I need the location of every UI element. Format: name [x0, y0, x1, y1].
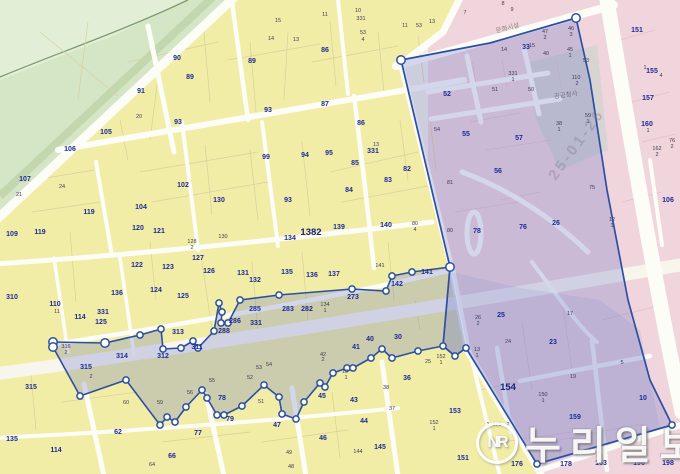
parcel-label: 2: [89, 374, 92, 380]
parcel-label: 132: [249, 277, 261, 284]
boundary-vertex: [349, 286, 355, 292]
parcel-label: 114: [50, 447, 61, 454]
parcel-label: 45: [318, 393, 326, 400]
parcel-label: 53: [583, 58, 589, 64]
parcel-label: 1: [323, 308, 326, 314]
parcel-label: 13: [429, 19, 435, 25]
parcel-label: 78: [473, 228, 481, 235]
parcel-label: 315: [25, 384, 37, 391]
parcel-label: 102: [177, 182, 189, 189]
boundary-vertex: [301, 399, 307, 405]
parcel-label: 41: [352, 344, 360, 351]
boundary-vertex: [164, 414, 170, 420]
parcel-label: 160: [641, 121, 653, 128]
parcel-label: 25: [425, 359, 431, 365]
parcel-label: 2: [506, 422, 509, 428]
boundary-vertex: [123, 377, 129, 383]
parcel-label: 17: [567, 311, 573, 317]
parcel-label: 331: [367, 148, 379, 155]
parcel-label: 91: [137, 88, 145, 95]
parcel-label: 11: [322, 12, 328, 18]
parcel-label: 49: [286, 450, 292, 456]
parcel-label: 51: [258, 399, 264, 405]
parcel-label: 273: [347, 294, 359, 301]
parcel-label: 178: [560, 461, 572, 468]
boundary-vertex: [452, 353, 458, 359]
parcel-label: 81: [447, 180, 453, 186]
boundary-vertex: [463, 345, 469, 351]
parcel-label: 1: [646, 128, 649, 134]
parcel-label: 151: [631, 27, 643, 34]
parcel-label: 37: [389, 406, 395, 412]
parcel-label: 51: [492, 87, 498, 93]
parcel-label: 53: [360, 30, 366, 36]
boundary-vertex: [216, 300, 222, 306]
parcel-label: 154: [500, 382, 517, 393]
parcel-label: 1: [541, 398, 544, 404]
parcel-label: 3: [569, 32, 572, 38]
parcel-label: 66: [168, 453, 176, 460]
parcel-label: 86: [321, 47, 329, 54]
parcel-label: 56: [494, 168, 502, 175]
parcel-label: 38: [383, 385, 389, 391]
parcel-label: 11: [402, 23, 408, 29]
parcel-label: 157: [642, 95, 654, 102]
parcel-label: 54: [434, 127, 440, 133]
parcel-label: 176: [511, 461, 523, 468]
parcel-label: 90: [173, 55, 181, 62]
boundary-vertex: [199, 387, 205, 393]
parcel-label: 139: [333, 224, 345, 231]
parcel-label: 311: [191, 344, 202, 351]
parcel-label: 89: [186, 74, 194, 81]
parcel-label: 119: [83, 209, 94, 216]
parcel-label: 13: [293, 37, 299, 43]
parcel-label: 1: [557, 127, 560, 133]
parcel-label: 84: [345, 187, 353, 194]
parcel-label: 43: [350, 397, 358, 404]
parcel-label: 196: [633, 460, 645, 467]
parcel-label: 310: [6, 294, 18, 301]
parcel-label: 106: [64, 146, 76, 153]
parcel-label: 137: [328, 271, 340, 278]
boundary-vertex: [446, 263, 454, 271]
parcel-label: 315: [80, 364, 92, 371]
parcel-label: 5: [620, 360, 623, 366]
boundary-vertex: [178, 345, 184, 351]
parcel-label: 288: [218, 328, 230, 335]
parcel-label: 40: [543, 51, 549, 57]
parcel-label: 15: [529, 43, 535, 49]
parcel-label: 120: [132, 225, 144, 232]
parcel-label: 2: [575, 81, 578, 87]
parcel-label: 46: [319, 435, 327, 442]
boundary-vertex: [383, 288, 389, 294]
parcel-label: 331: [97, 309, 109, 316]
parcel-label: 1: [475, 353, 478, 359]
boundary-vertex: [293, 416, 299, 422]
boundary-vertex: [276, 394, 282, 400]
parcel-label: 56: [187, 390, 193, 396]
parcel-label: 47: [273, 422, 281, 429]
parcel-label: 131: [237, 270, 249, 277]
parcel-label: 135: [6, 436, 18, 443]
parcel-label: 159: [569, 414, 581, 421]
parcel-label: 79: [226, 416, 234, 423]
boundary-vertex: [211, 328, 217, 334]
parcel-label: 20: [136, 114, 142, 120]
parcel-label: 331: [250, 320, 262, 327]
parcel-label: 15: [275, 18, 281, 24]
map-canvas: 9089899193939910510610710911911910410212…: [0, 0, 680, 474]
parcel-label: 99: [262, 154, 270, 161]
boundary-vertex: [397, 56, 405, 64]
parcel-label: 10: [639, 395, 647, 402]
parcel-label: 8: [501, 1, 504, 7]
parcel-label: 25: [497, 312, 505, 319]
parcel-label: 119: [34, 229, 45, 236]
parcel-label: 1: [610, 223, 613, 229]
parcel-label: 105: [100, 129, 112, 136]
parcel-label: 135: [281, 269, 293, 276]
boundary-vertex: [239, 403, 245, 409]
parcel-label: 134: [284, 235, 296, 242]
parcel-label: 86: [357, 120, 365, 127]
boundary-vertex: [279, 411, 285, 417]
parcel-label: 104: [135, 204, 147, 211]
parcel-label: 14: [501, 47, 507, 53]
parcel-label: 1: [432, 426, 435, 432]
parcel-label: 1: [643, 65, 646, 71]
parcel-label: 142: [391, 281, 403, 288]
parcel-label: 2: [64, 350, 67, 356]
parcel-label: 136: [306, 272, 318, 279]
parcel-label: 198: [662, 460, 674, 467]
boundary-vertex: [368, 355, 374, 361]
parcel-label: 54: [266, 362, 272, 368]
boundary-vertex: [350, 365, 356, 371]
parcel-label: 1: [586, 119, 589, 125]
parcel-label: 26: [552, 220, 560, 227]
parcel-label: 87: [321, 101, 329, 108]
parcel-label: 2: [543, 35, 546, 41]
parcel-label: 109: [6, 231, 18, 238]
parcel-label: 125: [177, 293, 189, 300]
parcel-label: 130: [218, 234, 227, 240]
boundary-vertex: [160, 346, 166, 352]
parcel-label: 14: [268, 36, 274, 42]
parcel-label: 24: [59, 184, 65, 190]
boundary-vertex: [49, 343, 57, 351]
boundary-vertex: [379, 346, 385, 352]
parcel-label: 52: [247, 375, 253, 381]
boundary-vertex: [158, 326, 164, 332]
parcel-label: 331: [356, 16, 365, 22]
parcel-label: 89: [248, 58, 256, 65]
parcel-label: 170: [492, 422, 501, 428]
parcel-label: 136: [111, 290, 123, 297]
parcel-label: 124: [150, 287, 162, 294]
parcel-label: 7: [463, 10, 466, 16]
parcel-label: 9: [510, 7, 513, 13]
boundary-vertex: [322, 384, 328, 390]
parcel-label: 125: [95, 319, 107, 326]
parcel-label: 153: [449, 408, 461, 415]
parcel-label: 62: [114, 429, 122, 436]
parcel-label: 130: [213, 197, 225, 204]
parcel-label: 40: [366, 336, 374, 343]
parcel-label: 11: [54, 309, 60, 315]
parcel-label: 1: [511, 77, 514, 83]
boundary-vertex: [330, 370, 336, 376]
parcel-label: 106: [662, 197, 674, 204]
parcel-label: 93: [174, 119, 182, 126]
parcel-label: 282: [301, 306, 313, 313]
boundary-vertex: [219, 309, 225, 315]
boundary-vertex: [389, 355, 395, 361]
boundary-vertex: [218, 320, 224, 326]
parcel-label: 77: [194, 430, 202, 437]
parcel-label: 85: [351, 160, 359, 167]
boundary-vertex: [237, 297, 243, 303]
parcel-label: 107: [19, 176, 31, 183]
parcel-label: 21: [16, 192, 22, 198]
parcel-label: 95: [325, 150, 333, 157]
parcel-label: 144: [353, 449, 362, 455]
boundary-vertex: [572, 14, 580, 22]
parcel-label: 285: [249, 306, 261, 313]
parcel-label: 283: [282, 306, 294, 313]
parcel-label: 4: [361, 37, 364, 43]
parcel-label: 122: [131, 262, 143, 269]
parcel-label: 10: [355, 8, 361, 14]
parcel-label: 23: [549, 339, 557, 346]
parcel-label: 141: [421, 269, 433, 276]
parcel-label: 1: [439, 360, 442, 366]
parcel-label: 60: [123, 400, 129, 406]
parcel-label: 286: [229, 318, 241, 325]
boundary-vertex: [204, 395, 210, 401]
parcel-label: 93: [284, 197, 292, 204]
parcel-label: 59: [157, 400, 163, 406]
parcel-label: 36: [403, 375, 411, 382]
parcel-label: 13: [373, 142, 379, 148]
boundary-vertex: [157, 422, 163, 428]
parcel-label: 1382: [300, 227, 321, 238]
parcel-label: 314: [116, 353, 128, 360]
boundary-vertex: [409, 269, 415, 275]
parcel-label: 121: [153, 228, 165, 235]
parcel-label: 55: [209, 378, 215, 384]
parcel-label: 53: [256, 365, 262, 371]
boundary-vertex: [172, 419, 178, 425]
parcel-label: 4: [659, 73, 662, 79]
parcel-label: 93: [264, 107, 272, 114]
parcel-label: 127: [192, 255, 204, 262]
parcel-label: 114: [74, 314, 85, 321]
parcel-label: 64: [149, 462, 155, 468]
parcel-label: 2: [476, 321, 479, 327]
map-image: 9089899193939910510610710911911910410212…: [0, 0, 680, 474]
boundary-vertex: [137, 332, 143, 338]
parcel-label: 110: [49, 301, 60, 308]
parcel-label: 312: [157, 353, 169, 360]
parcel-label: 123: [162, 264, 174, 271]
parcel-label: 145: [374, 444, 386, 451]
parcel-label: 2: [321, 357, 324, 363]
parcel-label: 24: [505, 339, 511, 345]
parcel-label: 2: [670, 144, 673, 150]
parcel-label: 80: [447, 228, 453, 234]
boundary-vertex: [276, 292, 282, 298]
parcel-label: 163: [595, 460, 607, 467]
parcel-label: 155: [646, 68, 658, 75]
parcel-label: 1: [344, 375, 347, 381]
boundary-vertex: [415, 348, 421, 354]
parcel-label: 30: [394, 334, 402, 341]
parcel-label: 76: [519, 224, 527, 231]
parcel-label: 94: [301, 152, 309, 159]
parcel-label: 44: [360, 418, 368, 425]
parcel-label: 52: [443, 91, 451, 98]
parcel-label: 48: [288, 464, 294, 470]
parcel-label: 78: [218, 395, 226, 402]
parcel-label: 140: [380, 222, 392, 229]
boundary-vertex: [440, 343, 446, 349]
parcel-label: 75: [589, 185, 595, 191]
boundary-vertex: [261, 382, 267, 388]
parcel-label: 313: [172, 329, 184, 336]
parcel-label: 19: [570, 374, 576, 380]
parcel-label: 50: [528, 87, 534, 93]
boundary-vertex: [214, 412, 220, 418]
boundary-vertex: [183, 404, 189, 410]
parcel-label: 2: [190, 245, 193, 251]
boundary-vertex: [389, 273, 395, 279]
parcel-label: 126: [203, 268, 215, 275]
parcel-label: 1: [486, 422, 489, 428]
parcel-label: 141: [375, 263, 384, 269]
parcel-label: 4: [413, 227, 416, 233]
parcel-label: 55: [462, 131, 470, 138]
boundary-vertex: [77, 393, 83, 399]
parcel-label: 83: [384, 177, 392, 184]
boundary-vertex: [534, 461, 540, 467]
parcel-label: 2: [655, 152, 658, 158]
parcel-label: 1: [568, 53, 571, 59]
boundary-vertex: [101, 339, 109, 347]
boundary-vertex: [669, 422, 675, 428]
parcel-label: 151: [457, 455, 469, 462]
parcel-label: 82: [403, 166, 411, 173]
parcel-label: 53: [416, 23, 422, 29]
parcel-label: 57: [515, 135, 523, 142]
